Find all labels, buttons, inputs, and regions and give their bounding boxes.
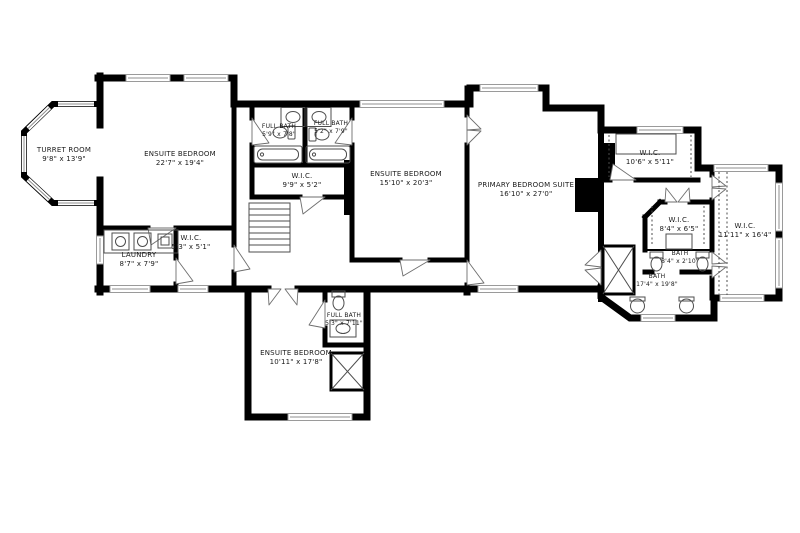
bathtub-icon [306,146,350,163]
room-label-wic-north: W.I.C. 10'6" x 5'11" [626,149,674,167]
pedestal-sink-icon [679,297,694,313]
room-dims: 8'4" x 2'10" [661,258,699,266]
room-name: TURRET ROOM [37,146,91,155]
room-dims: 16'10" x 27'0" [478,190,574,199]
room-dims: 5'3" x 5'1" [172,243,211,252]
shower-icon [331,353,364,390]
room-name: ENSUITE BEDROOM [144,150,216,159]
pedestal-sink-icon [630,297,645,313]
room-label-wic-middle: W.I.C. 9'9" x 5'2" [283,172,322,190]
room-label-laundry: LAUNDRY 8'7" x 7'9" [120,251,159,269]
room-label-wic-laundry: W.I.C. 5'3" x 5'1" [172,234,211,252]
room-dims: 5'3" x 7'11" [325,320,363,328]
room-dims: 8'7" x 7'9" [120,260,159,269]
bathtub-icon [254,146,302,163]
room-label-bath-small: BATH 8'4" x 2'10" [661,250,699,266]
room-label-bath-large: BATH 17'4" x 19'8" [636,273,678,289]
room-name: BATH [636,273,678,281]
room-label-wic-inner: W.I.C. 8'4" x 6'5" [660,216,699,234]
shower-icon [603,246,634,294]
room-name: ENSUITE BEDROOM [370,170,442,179]
room-dims: 5'9" x 7'8" [262,131,296,139]
room-label-ensuite-bedroom-2: ENSUITE BEDROOM 15'10" x 20'3" [370,170,442,188]
room-label-ensuite-bedroom-3: ENSUITE BEDROOM 10'11" x 17'8" [260,349,332,367]
room-dims: 22'7" x 19'4" [144,159,216,168]
room-dims: 5'2" x 7'9" [314,128,348,136]
room-dims: 11'11" x 16'4" [719,231,772,240]
room-label-wic-east: W.I.C. 11'11" x 16'4" [719,222,772,240]
room-name: FULL BATH [314,120,348,128]
window-markers [24,75,783,421]
room-name: W.I.C. [626,149,674,158]
room-dims: 9'8" x 13'9" [37,155,91,164]
room-dims: 10'6" x 5'11" [626,158,674,167]
washer-icon [112,233,129,250]
room-label-turret-room: TURRET ROOM 9'8" x 13'9" [37,146,91,164]
room-dims: 8'4" x 6'5" [660,225,699,234]
room-dims: 15'10" x 20'3" [370,179,442,188]
floor-plan-page: TURRET ROOM 9'8" x 13'9" ENSUITE BEDROOM… [0,0,800,533]
room-dims: 17'4" x 19'8" [636,281,678,289]
room-label-full-bath-1: FULL BATH 5'9" x 7'8" [262,123,296,139]
room-name: W.I.C. [719,222,772,231]
room-label-ensuite-bedroom-1: ENSUITE BEDROOM 22'7" x 19'4" [144,150,216,168]
toilet-icon [332,291,345,310]
room-dims: 10'11" x 17'8" [260,358,332,367]
dryer-icon [134,233,151,250]
room-label-full-bath-2: FULL BATH 5'2" x 7'9" [314,120,348,136]
room-name: FULL BATH [262,123,296,131]
room-name: PRIMARY BEDROOM SUITE [478,181,574,190]
room-name: FULL BATH [325,312,363,320]
room-name: W.I.C. [283,172,322,181]
room-name: ENSUITE BEDROOM [260,349,332,358]
room-name: W.I.C. [660,216,699,225]
room-name: W.I.C. [172,234,211,243]
stairs-icon [249,203,290,252]
room-dims: 9'9" x 5'2" [283,181,322,190]
room-label-full-bath-3: FULL BATH 5'3" x 7'11" [325,312,363,328]
room-name: LAUNDRY [120,251,159,260]
room-label-primary-suite: PRIMARY BEDROOM SUITE 16'10" x 27'0" [478,181,574,199]
room-name: BATH [661,250,699,258]
